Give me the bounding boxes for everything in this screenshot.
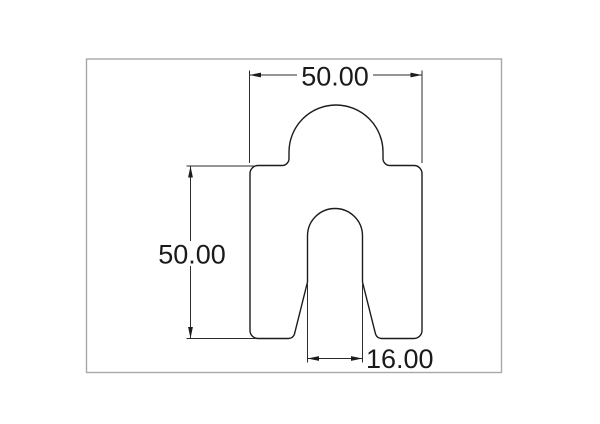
dim-width-top: 50.00 bbox=[250, 62, 423, 164]
dim-arrow-right-icon bbox=[411, 73, 423, 78]
dim-arrow-left-icon bbox=[308, 356, 320, 361]
dim-height-left: 50.00 bbox=[154, 166, 256, 339]
cad-drawing-svg: 50.00 50.00 16.00 bbox=[0, 0, 600, 424]
drawing-frame bbox=[87, 59, 502, 373]
dim-arrow-left-icon bbox=[250, 73, 262, 78]
dim-slot-width-label: 16.00 bbox=[366, 344, 434, 374]
drawing-canvas: 50.00 50.00 16.00 bbox=[0, 0, 600, 424]
shim-outline bbox=[250, 105, 422, 339]
dim-arrow-right-icon bbox=[351, 356, 363, 361]
dim-width-top-label: 50.00 bbox=[301, 62, 369, 92]
dim-height-left-label: 50.00 bbox=[158, 240, 226, 270]
dim-slot-width: 16.00 bbox=[308, 284, 434, 374]
dim-arrow-down-icon bbox=[188, 327, 193, 339]
dim-arrow-up-icon bbox=[188, 166, 193, 178]
